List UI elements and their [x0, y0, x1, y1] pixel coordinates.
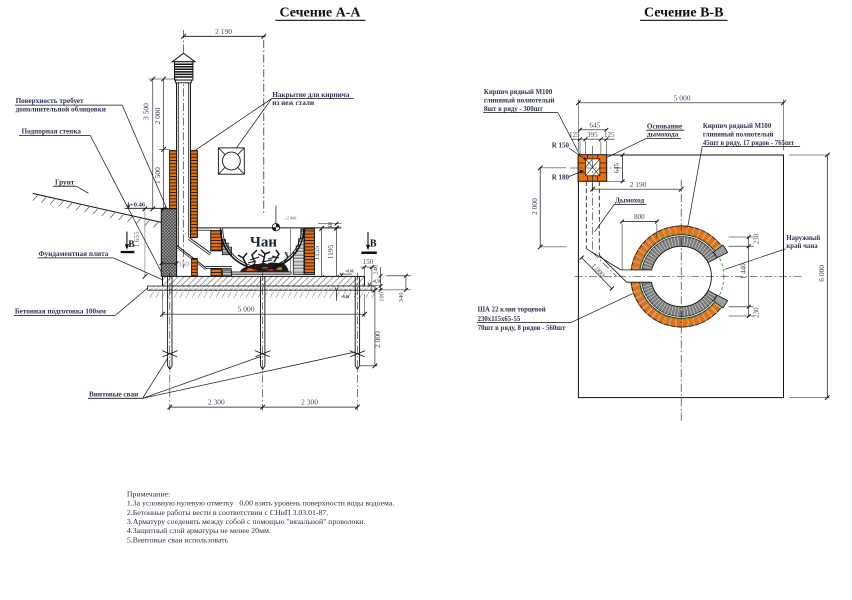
svg-text:глиняный полнотелый: глиняный полнотелый — [703, 131, 774, 138]
svg-text:800: 800 — [634, 213, 645, 221]
svg-text:4.Защитный слой арматуры не ме: 4.Защитный слой арматуры не менее 20мм. — [127, 526, 271, 535]
svg-text:+0,56: +0,56 — [372, 279, 381, 283]
svg-text:340: 340 — [398, 293, 405, 303]
svg-text:8шт в ряду - 300шт: 8шт в ряду - 300шт — [484, 106, 543, 113]
svg-text:Сечение А-А: Сечение А-А — [280, 6, 362, 21]
svg-text:глиняный полнотелый: глиняный полнотелый — [484, 97, 555, 104]
svg-text:150: 150 — [363, 258, 374, 266]
svg-text:3 500: 3 500 — [142, 103, 151, 120]
svg-text:+0,46: +0,46 — [341, 295, 350, 299]
svg-text:230: 230 — [753, 233, 761, 244]
svg-text:+2 000: +2 000 — [285, 216, 297, 221]
svg-text:5 000: 5 000 — [238, 305, 255, 314]
svg-text:3.Арматуру соеденять между соб: 3.Арматуру соеденять между собой с помощ… — [127, 517, 366, 526]
svg-text:125: 125 — [604, 131, 615, 139]
svg-text:дополнительной облицовки: дополнительной облицовки — [16, 106, 106, 114]
svg-text:R 180: R 180 — [552, 173, 570, 181]
svg-text:1 440: 1 440 — [740, 263, 748, 279]
svg-text:2 000: 2 000 — [530, 198, 539, 215]
svg-text:1155: 1155 — [312, 245, 321, 260]
svg-text:2 300: 2 300 — [301, 397, 318, 406]
svg-text:395: 395 — [587, 131, 598, 139]
svg-text:2 190: 2 190 — [630, 180, 647, 189]
svg-text:2 000: 2 000 — [373, 331, 382, 348]
svg-text:1195: 1195 — [326, 244, 335, 259]
svg-text:5.Винтовые сваи использовать: 5.Винтовые сваи использовать — [127, 535, 229, 544]
svg-text:Примечание:: Примечание: — [127, 489, 170, 498]
svg-text:из неж стали: из неж стали — [272, 99, 314, 107]
svg-text:2 000: 2 000 — [153, 107, 162, 124]
svg-text:Кирпич рядный М100: Кирпич рядный М100 — [484, 89, 553, 96]
svg-text:Подпорная стенка: Подпорная стенка — [22, 128, 82, 136]
svg-text:+0.46: +0.46 — [130, 201, 146, 208]
svg-text:100: 100 — [379, 292, 386, 302]
svg-text:645: 645 — [613, 162, 621, 173]
svg-text:645: 645 — [589, 121, 600, 129]
svg-text:В: В — [370, 238, 377, 249]
svg-text:5 000: 5 000 — [674, 94, 691, 103]
svg-text:40: 40 — [327, 222, 334, 228]
svg-text:+0.00: +0.00 — [345, 270, 354, 274]
svg-text:240: 240 — [372, 265, 379, 275]
svg-text:Винтовые сваи: Винтовые сваи — [89, 391, 138, 399]
svg-text:1 500: 1 500 — [153, 167, 162, 184]
svg-text:70шт в ряду, 8 рядов - 560шт: 70шт в ряду, 8 рядов - 560шт — [478, 325, 566, 332]
svg-text:R 150: R 150 — [552, 142, 570, 150]
svg-text:Накрытие для кирпича: Накрытие для кирпича — [272, 91, 350, 99]
svg-text:2 190: 2 190 — [215, 27, 232, 36]
svg-text:край чана: край чана — [786, 243, 818, 250]
svg-text:Фундаментная плита: Фундаментная плита — [39, 250, 109, 258]
svg-text:2.Бетонные работы вести в соот: 2.Бетонные работы вести в соответствии с… — [127, 508, 328, 517]
svg-text:В: В — [128, 239, 134, 249]
svg-text:Дымоход: Дымоход — [615, 197, 644, 205]
svg-text:350: 350 — [178, 260, 189, 268]
svg-text:ША 22 клин торцевой: ША 22 клин торцевой — [478, 307, 546, 314]
svg-text:Сечение В-В: Сечение В-В — [644, 6, 723, 21]
svg-text:Основание: Основание — [647, 122, 682, 130]
svg-text:Чан: Чан — [250, 235, 278, 251]
svg-text:Грунт: Грунт — [55, 178, 75, 186]
svg-text:230: 230 — [753, 307, 761, 318]
svg-text:Наружный: Наружный — [786, 235, 820, 242]
svg-text:1.За условную нулевую отметку: 1.За условную нулевую отметку 0,00 взять… — [127, 499, 394, 508]
svg-text:Бетонная подготовка 100мм: Бетонная подготовка 100мм — [15, 308, 106, 316]
svg-text:Кирпич рядный М100: Кирпич рядный М100 — [703, 123, 772, 130]
svg-text:230x115x65-55: 230x115x65-55 — [478, 316, 521, 323]
svg-text:45шт в ряду, 17 рядов - 765шт: 45шт в ряду, 17 рядов - 765шт — [703, 140, 795, 147]
svg-text:дымохода: дымохода — [647, 131, 679, 139]
svg-text:6 000: 6 000 — [817, 265, 826, 282]
svg-text:2 300: 2 300 — [208, 397, 225, 406]
svg-text:Поверхность требует: Поверхность требует — [16, 97, 84, 105]
